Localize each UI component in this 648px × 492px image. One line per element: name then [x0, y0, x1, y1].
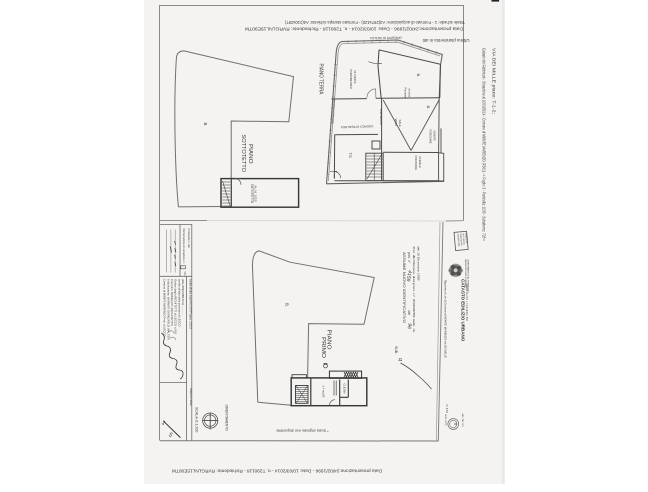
- svg-text:DI CORTE: DI CORTE: [353, 71, 357, 84]
- svg-text:Protocollo n. del: Protocollo n. del: [187, 229, 191, 249]
- svg-text:di corte: di corte: [408, 89, 412, 98]
- svg-text:ARC. DEI 2011: ARC. DEI 2011: [461, 414, 464, 428]
- svg-text:SALE: SALE: [398, 120, 402, 127]
- svg-text:istituito con R.D.L. 13-4-1939: istituito con R.D.L. 13-4-1939 n. 652: [465, 284, 468, 321]
- svg-text:B.: B.: [203, 123, 208, 127]
- svg-text:Il tecnico: DONGHI P. ARCHITE: Il tecnico: DONGHI P. ARCHITETTO: [170, 279, 174, 327]
- svg-text:B.: B.: [426, 106, 431, 110]
- svg-text:prot. n°: prot. n°: [407, 252, 411, 264]
- svg-text:* Scala originale non disponib: * Scala originale non disponibile: [276, 429, 328, 433]
- svg-text:Per dichiarare dal prot. n° 20: Per dichiarare dal prot. n° 20360/89 sub…: [412, 247, 416, 334]
- svg-text:SOTTOTETTO: SOTTOTETTO: [240, 135, 246, 173]
- svg-text:PORZIONE: PORZIONE: [414, 156, 418, 171]
- svg-text:AL N. 1029: AL N. 1029: [254, 186, 258, 202]
- svg-text:PRIMO: PRIMO: [320, 337, 326, 358]
- svg-text:MOD. 98 TP: MOD. 98 TP: [444, 415, 446, 427]
- svg-text:TS: TS: [348, 153, 353, 158]
- svg-text:NO: NO: [183, 272, 187, 276]
- svg-text:data 20/02/1996 firma .....: data 20/02/1996 firma .............: [181, 279, 185, 316]
- svg-text:PORZIONE: PORZIONE: [429, 130, 433, 144]
- svg-text:11: 11: [453, 422, 457, 426]
- svg-text:Catasto dei Fabbricati - Situa: Catasto dei Fabbricati - Situazione al 1…: [481, 48, 487, 241]
- svg-text:RURALE: RURALE: [418, 157, 422, 168]
- svg-text:Comune di MONTE MARENZO Prov.: Comune di MONTE MARENZO Prov. di LECCO: [163, 279, 167, 336]
- svg-text:CATASTO EDILIZIO URBANO: CATASTO EDILIZIO URBANO: [461, 279, 466, 342]
- svg-text:PIANO TERRA: PIANO TERRA: [318, 64, 324, 95]
- svg-text:VANO: VANO: [394, 119, 398, 128]
- svg-text:PORZIONE PRIVA: PORZIONE PRIVA: [349, 70, 353, 90]
- svg-text:CUCINA: CUCINA: [343, 384, 347, 395]
- svg-text:ORIENTAMENTO: ORIENTAMENTO: [225, 405, 229, 432]
- svg-text:POTERE DI GIARDINO: POTERE DI GIARDINO: [370, 36, 403, 41]
- svg-text:del: del: [407, 311, 411, 316]
- svg-text:TIMBRO E FIRMA: TIMBRO E FIRMA: [189, 388, 192, 407]
- svg-text:B.: B.: [416, 74, 421, 78]
- svg-text:Dichiarazione di variazione n.: Dichiarazione di variazione n.: [182, 229, 186, 264]
- svg-text:Data presentazione:24/02/1996: Data presentazione:24/02/1996 - Data: 10…: [172, 468, 382, 474]
- svg-text:ASSUME NUOVO IDENTIFICATIVO: ASSUME NUOVO IDENTIFICATIVO: [402, 252, 407, 323]
- svg-text:Ordine degli ARCHITETTI di LEC: Ordine degli ARCHITETTI di LECCO n.562: [174, 279, 178, 334]
- svg-text:B.: B.: [285, 303, 290, 307]
- svg-text:ADIBITA: ADIBITA: [432, 131, 436, 141]
- svg-text:x 4 mq 50: x 4 mq 50: [322, 386, 326, 398]
- svg-text:SUB.: SUB.: [394, 346, 398, 354]
- svg-text:del 16 Dicembre 1989: del 16 Dicembre 1989: [416, 247, 420, 282]
- svg-text:Ultima planimetria in atti: Ultima planimetria in atti: [423, 38, 470, 43]
- svg-text:SCALA di 1:200: SCALA di 1:200: [195, 407, 199, 432]
- svg-text:Il dichiarante: BARNATI GIANCA: Il dichiarante: BARNATI GIANCARLO WALTER: [166, 279, 170, 340]
- svg-text:m. 5,51: m. 5,51: [445, 404, 449, 413]
- svg-text:Data presentazione:24/02/1996: Data presentazione:24/02/1996 - Data: 10…: [245, 25, 463, 31]
- svg-text:Iscritto all'albo degli ARCHIT: Iscritto all'albo degli ARCHITETTI prov.…: [189, 279, 192, 329]
- svg-text:VIA DEI MILLE piano: T-1-2;: VIA DEI MILLE piano: T-1-2;: [490, 48, 496, 114]
- svg-text:Porzione: Porzione: [404, 88, 408, 99]
- svg-text:PIANO: PIANO: [247, 144, 253, 164]
- svg-text:SOTTOTETTO: SOTTOTETTO: [250, 184, 254, 203]
- svg-text:PORTIERA DI: PORTIERA DI: [379, 109, 383, 125]
- svg-text:iscritto all'albo della provin: iscritto all'albo della provincia di LEC…: [177, 279, 181, 327]
- svg-text:Totale schede: 1 - Formato di: Totale schede: 1 - Formato di acquisizio…: [285, 20, 465, 25]
